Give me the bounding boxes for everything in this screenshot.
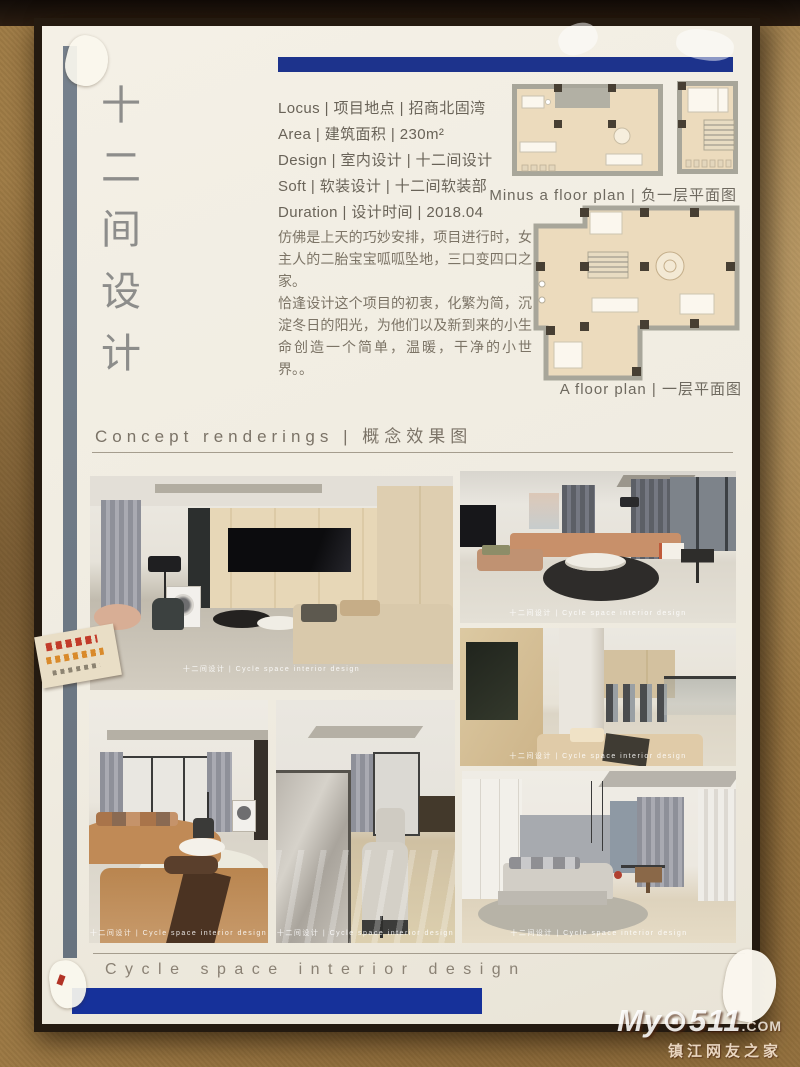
floor-lamp-shade xyxy=(148,556,181,572)
site-logo-suffix: .COM xyxy=(741,1018,782,1034)
ceiling-recess xyxy=(308,726,424,738)
minus-floor-plan-caption: Minus a floor plan | 负一层平面图 xyxy=(476,184,737,205)
glass-partition xyxy=(664,676,736,715)
dining-chairs xyxy=(606,684,667,722)
top-navy-bar xyxy=(278,57,733,72)
ceiling-recess xyxy=(599,771,736,787)
tv-screen xyxy=(228,528,351,572)
photo-hallway: 十二间设计 | Cycle space interior design xyxy=(276,700,455,943)
sofa-pillows xyxy=(96,812,178,826)
left-vertical-bar xyxy=(63,46,77,958)
info-line-soft: Soft | 软装设计 | 十二间软装部 xyxy=(278,174,493,200)
a-floor-plan-caption: A floor plan | 一层平面图 xyxy=(530,378,742,399)
site-subtitle: 镇江网友之家 xyxy=(617,1040,782,1061)
minus-floor-plan-drawing xyxy=(510,80,740,178)
chaise-cushion xyxy=(482,545,510,555)
curtain-white xyxy=(698,789,736,901)
scrap-gray-print xyxy=(52,662,100,675)
dark-artwork xyxy=(466,642,518,720)
intro-paragraph-1: 仿佛是上天的巧妙安排，项目进行时，女主人的二胎宝宝呱呱坠地，三口变四口之家。 xyxy=(278,226,532,292)
info-line-design: Design | 室内设计 | 十二间设计 xyxy=(278,148,493,174)
sofa-cushion-beige xyxy=(340,600,380,616)
design-poster: 十二间设计 Locus | 项目地点 | 招商北固湾 Area | 建筑面积 |… xyxy=(34,18,760,1032)
arc-lamp-shade xyxy=(620,497,639,507)
info-line-area: Area | 建筑面积 | 230m² xyxy=(278,122,493,148)
accent-wall xyxy=(610,801,637,873)
lounge-chair xyxy=(152,598,185,630)
washer-door-icon xyxy=(237,806,251,820)
intro-text: 仿佛是上天的巧妙安排，项目进行时，女主人的二胎宝宝呱呱坠地，三口变四口之家。 恰… xyxy=(278,226,532,380)
site-logo: My⊙511 xyxy=(617,1003,741,1038)
photo-watermark-text: 十二间设计 | Cycle space interior design xyxy=(90,664,453,674)
dark-cabinet-right xyxy=(254,740,268,840)
pendant-wire xyxy=(591,781,592,843)
photo-living-room-rug: 十二间设计 | Cycle space interior design xyxy=(460,471,736,623)
tv-screen-left xyxy=(460,505,496,547)
a-floor-plan-drawing xyxy=(530,204,742,382)
wire-chair xyxy=(681,549,714,583)
wall-art xyxy=(529,493,559,529)
red-accent-item xyxy=(614,871,622,879)
ottoman-back-cushion xyxy=(164,856,218,874)
ceiling-beam xyxy=(155,484,322,493)
site-watermark: My⊙511.COM 镇江网友之家 xyxy=(617,1003,782,1061)
photo-watermark-text: 十二间设计 | Cycle space interior design xyxy=(460,608,736,618)
project-info-list: Locus | 项目地点 | 招商北固湾 Area | 建筑面积 | 230m²… xyxy=(278,96,493,226)
info-line-duration: Duration | 设计时间 | 2018.04 xyxy=(278,200,493,226)
photo-watermark-text: 十二间设计 | Cycle space interior design xyxy=(462,928,736,938)
curtain-center xyxy=(351,754,372,832)
poster-paper: 十二间设计 Locus | 项目地点 | 招商北固湾 Area | 建筑面积 |… xyxy=(42,26,752,1024)
photo-bedroom: 十二间设计 | Cycle space interior design xyxy=(462,771,736,943)
window-curtain-left xyxy=(101,500,141,616)
sofa-pillow xyxy=(570,728,603,742)
bottom-navy-bar xyxy=(72,988,482,1014)
bed-base xyxy=(498,891,608,905)
pendant-wire xyxy=(602,781,603,851)
concept-renderings-heading: Concept renderings | 概念效果图 xyxy=(95,422,472,447)
photo-watermark-text: 十二间设计 | Cycle space interior design xyxy=(276,928,455,938)
dark-desk-right xyxy=(419,796,455,832)
sofa-throw-dark xyxy=(602,733,650,766)
ceiling-beam xyxy=(107,730,268,740)
vertical-title: 十二间设计 xyxy=(88,84,146,394)
intro-paragraph-2: 恰逢设计这个项目的初衷，化繁为简，沉淀冬日的阳光，为他们以及新到来的小生命创造一… xyxy=(278,292,532,380)
photo-watermark-text: 十二间设计 | Cycle space interior design xyxy=(89,928,268,938)
desk-chair xyxy=(635,867,662,893)
sofa-cushion-gray xyxy=(301,604,337,622)
info-line-locus: Locus | 项目地点 | 招商北固湾 xyxy=(278,96,493,122)
photo-watermark-text: 十二间设计 | Cycle space interior design xyxy=(460,751,736,761)
small-chair xyxy=(193,818,214,838)
bed-pillows xyxy=(509,857,580,869)
coffee-table xyxy=(565,553,626,571)
photo-living-room-sofa: 十二间设计 | Cycle space interior design xyxy=(89,700,268,943)
heading-rule xyxy=(92,452,733,453)
bottom-heading: Cycle space interior design xyxy=(105,961,527,979)
round-table xyxy=(179,838,226,856)
bottom-rule xyxy=(93,953,745,954)
photo-dining-room: 十二间设计 | Cycle space interior design xyxy=(460,628,736,766)
photo-living-room-main: 十二间设计 | Cycle space interior design xyxy=(90,476,453,690)
